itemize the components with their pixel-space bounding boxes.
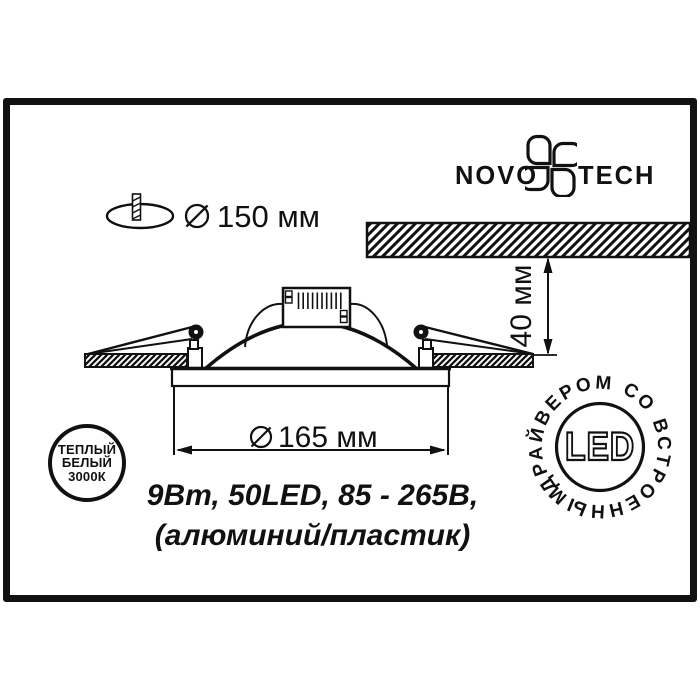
flange-strip-right — [432, 354, 533, 367]
cutout-dimension-label: 150 мм — [217, 199, 320, 234]
height-dimension-label: 40 мм — [505, 265, 538, 348]
warm-badge-line2: БЕЛЫЙ — [62, 456, 112, 470]
trim-ring — [170, 368, 451, 386]
height-dimension: 40 мм — [505, 257, 557, 355]
novotech-logo: NOVO TECH — [455, 133, 670, 197]
drill-hole-icon — [107, 194, 173, 228]
logo-text-tech: TECH — [578, 162, 655, 191]
warm-badge-line1: ТЕПЛЫЙ — [58, 443, 116, 457]
diameter-icon — [186, 205, 208, 227]
ceiling-hatch — [367, 223, 690, 257]
product-diagram: 150 мм 40 мм — [0, 0, 700, 700]
novotech-flower-icon — [525, 133, 577, 197]
diameter-icon — [251, 427, 271, 447]
fixture-cross-section: 165 мм — [85, 288, 533, 455]
driver-box — [283, 288, 350, 327]
spec-line-1: 9Вт, 50LED, 85 - 265В, — [25, 476, 600, 516]
led-badge-label: LED — [565, 425, 635, 469]
spec-line-2: (алюминий/пластик) — [25, 516, 600, 556]
spec-text: 9Вт, 50LED, 85 - 265В, (алюминий/пластик… — [25, 476, 600, 556]
cutout-dimension: 150 мм — [186, 199, 320, 234]
diagram-artwork: 150 мм 40 мм — [0, 0, 700, 700]
diameter-dimension-label: 165 мм — [278, 421, 378, 454]
housing-dome — [205, 323, 417, 370]
flange-strip-left — [85, 354, 187, 367]
diameter-dimension: 165 мм — [174, 386, 448, 455]
